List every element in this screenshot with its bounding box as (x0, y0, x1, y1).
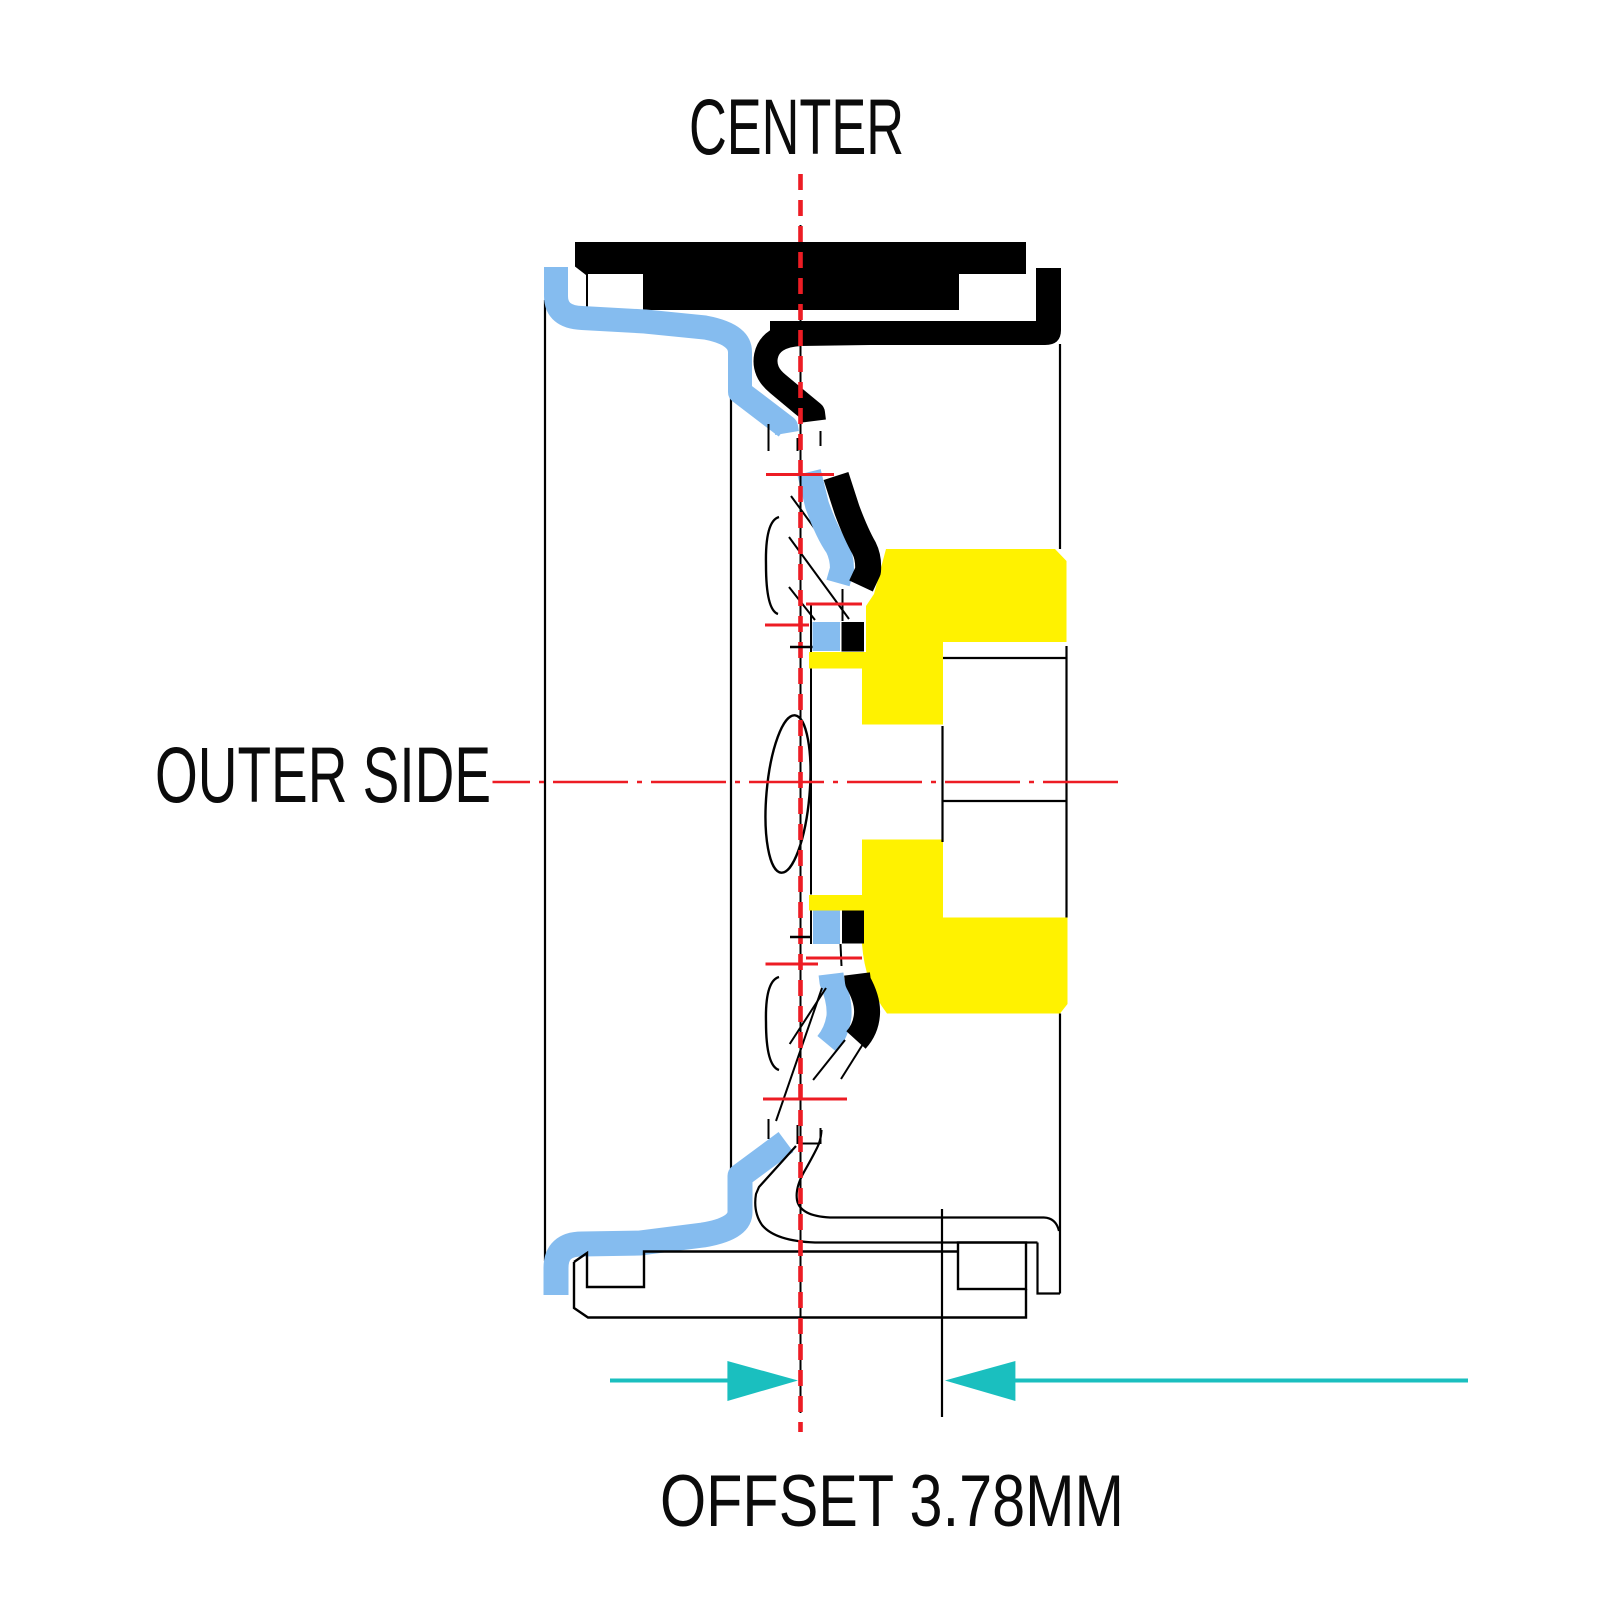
svg-text:OFFSET 3.78MM: OFFSET 3.78MM (660, 1461, 1124, 1542)
svg-text:OUTER SIDE: OUTER SIDE (155, 730, 491, 819)
svg-text:CENTER: CENTER (689, 82, 904, 171)
